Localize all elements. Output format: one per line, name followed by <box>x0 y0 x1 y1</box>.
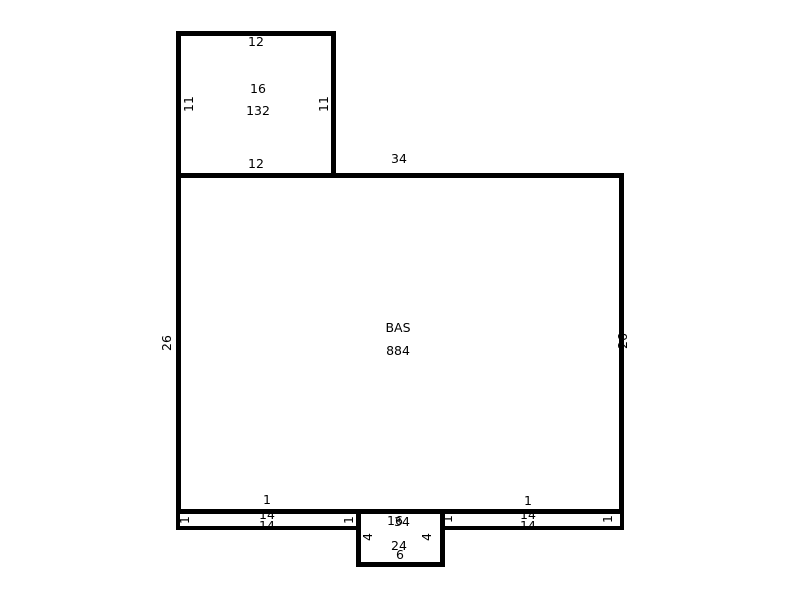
base-area-label: 884 <box>386 345 410 358</box>
stoop-right-dim-label: 4 <box>421 533 434 541</box>
addition-code-label: 16 <box>250 83 266 96</box>
addition-left-dim-label: 11 <box>183 96 196 112</box>
stoop-bottom-dim-label: 6 <box>396 549 404 562</box>
addition-top-dim-label: 12 <box>248 36 264 49</box>
stoop-left-dim-label: 4 <box>362 533 375 541</box>
left-strip-right-dim-label: 1 <box>343 516 356 524</box>
right-strip-height-label: 1 <box>524 495 532 508</box>
base-right-dim-label: 26 <box>617 333 630 349</box>
stoop-code-label: 16 <box>387 515 403 528</box>
base-code-label: BAS <box>385 322 410 335</box>
addition-bottom-dim-label: 12 <box>248 158 264 171</box>
left-strip-bottom-dim-label: 14 <box>259 520 275 533</box>
right-strip-right-dim-label: 1 <box>602 515 615 523</box>
left-strip-height-label: 1 <box>263 494 271 507</box>
base-left-dim-label: 26 <box>161 335 174 351</box>
right-strip-bottom-dim-label: 14 <box>520 520 536 533</box>
right-strip-left-dim-label: 1 <box>442 515 455 523</box>
left-strip-left-dim-label: 1 <box>179 516 192 524</box>
addition-right-dim-label: 11 <box>318 96 331 112</box>
addition-area-label: 132 <box>246 105 270 118</box>
floor-plan-canvas: 12 16 132 12 11 11 34 BAS 884 26 26 34 1… <box>0 0 800 600</box>
base-top-dim-label: 34 <box>391 153 407 166</box>
